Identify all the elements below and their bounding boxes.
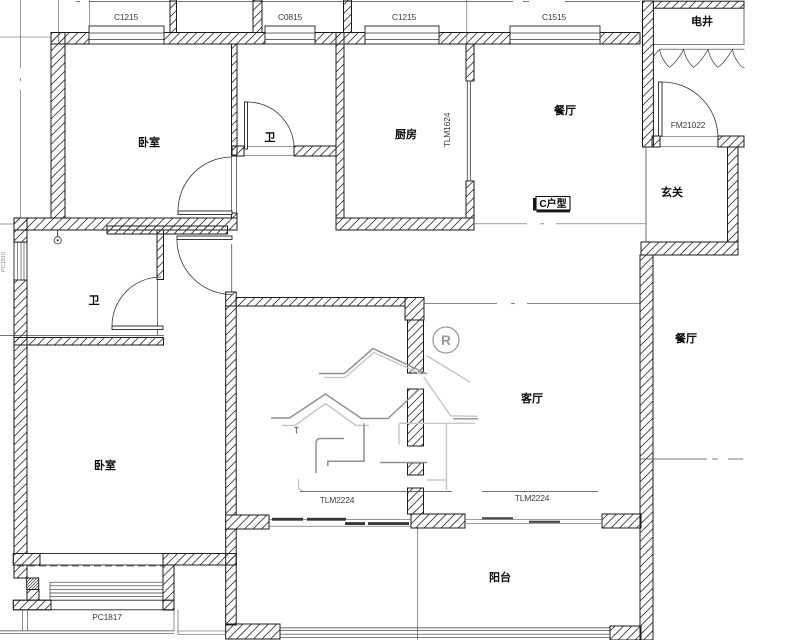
svg-text:C0815: C0815 — [278, 12, 303, 22]
svg-text:C1215: C1215 — [114, 12, 139, 22]
svg-text:电井: 电井 — [691, 14, 713, 28]
svg-text:TLM2224: TLM2224 — [320, 495, 355, 505]
svg-text:FM21022: FM21022 — [671, 120, 706, 130]
svg-text:厨房: 厨房 — [395, 127, 417, 141]
svg-text:TLM2224: TLM2224 — [515, 493, 550, 503]
svg-text:PC1817: PC1817 — [92, 612, 122, 622]
svg-text:餐厅: 餐厅 — [674, 331, 697, 345]
svg-text:玄关: 玄关 — [661, 185, 683, 199]
svg-text:TLM1624: TLM1624 — [442, 112, 452, 147]
svg-text:PC1810: PC1810 — [1, 252, 7, 272]
svg-text:卫: 卫 — [89, 294, 100, 307]
svg-text:C户型: C户型 — [539, 197, 566, 210]
svg-text:卫: 卫 — [265, 131, 276, 144]
svg-text:客厅: 客厅 — [520, 391, 543, 405]
svg-text:C1515: C1515 — [542, 12, 567, 22]
svg-text:卧室: 卧室 — [94, 458, 116, 472]
svg-text:餐厅: 餐厅 — [553, 103, 576, 117]
svg-text:卧室: 卧室 — [138, 135, 160, 149]
svg-text:C1215: C1215 — [392, 12, 417, 22]
svg-text:R: R — [441, 333, 451, 348]
svg-text:阳台: 阳台 — [489, 570, 511, 584]
